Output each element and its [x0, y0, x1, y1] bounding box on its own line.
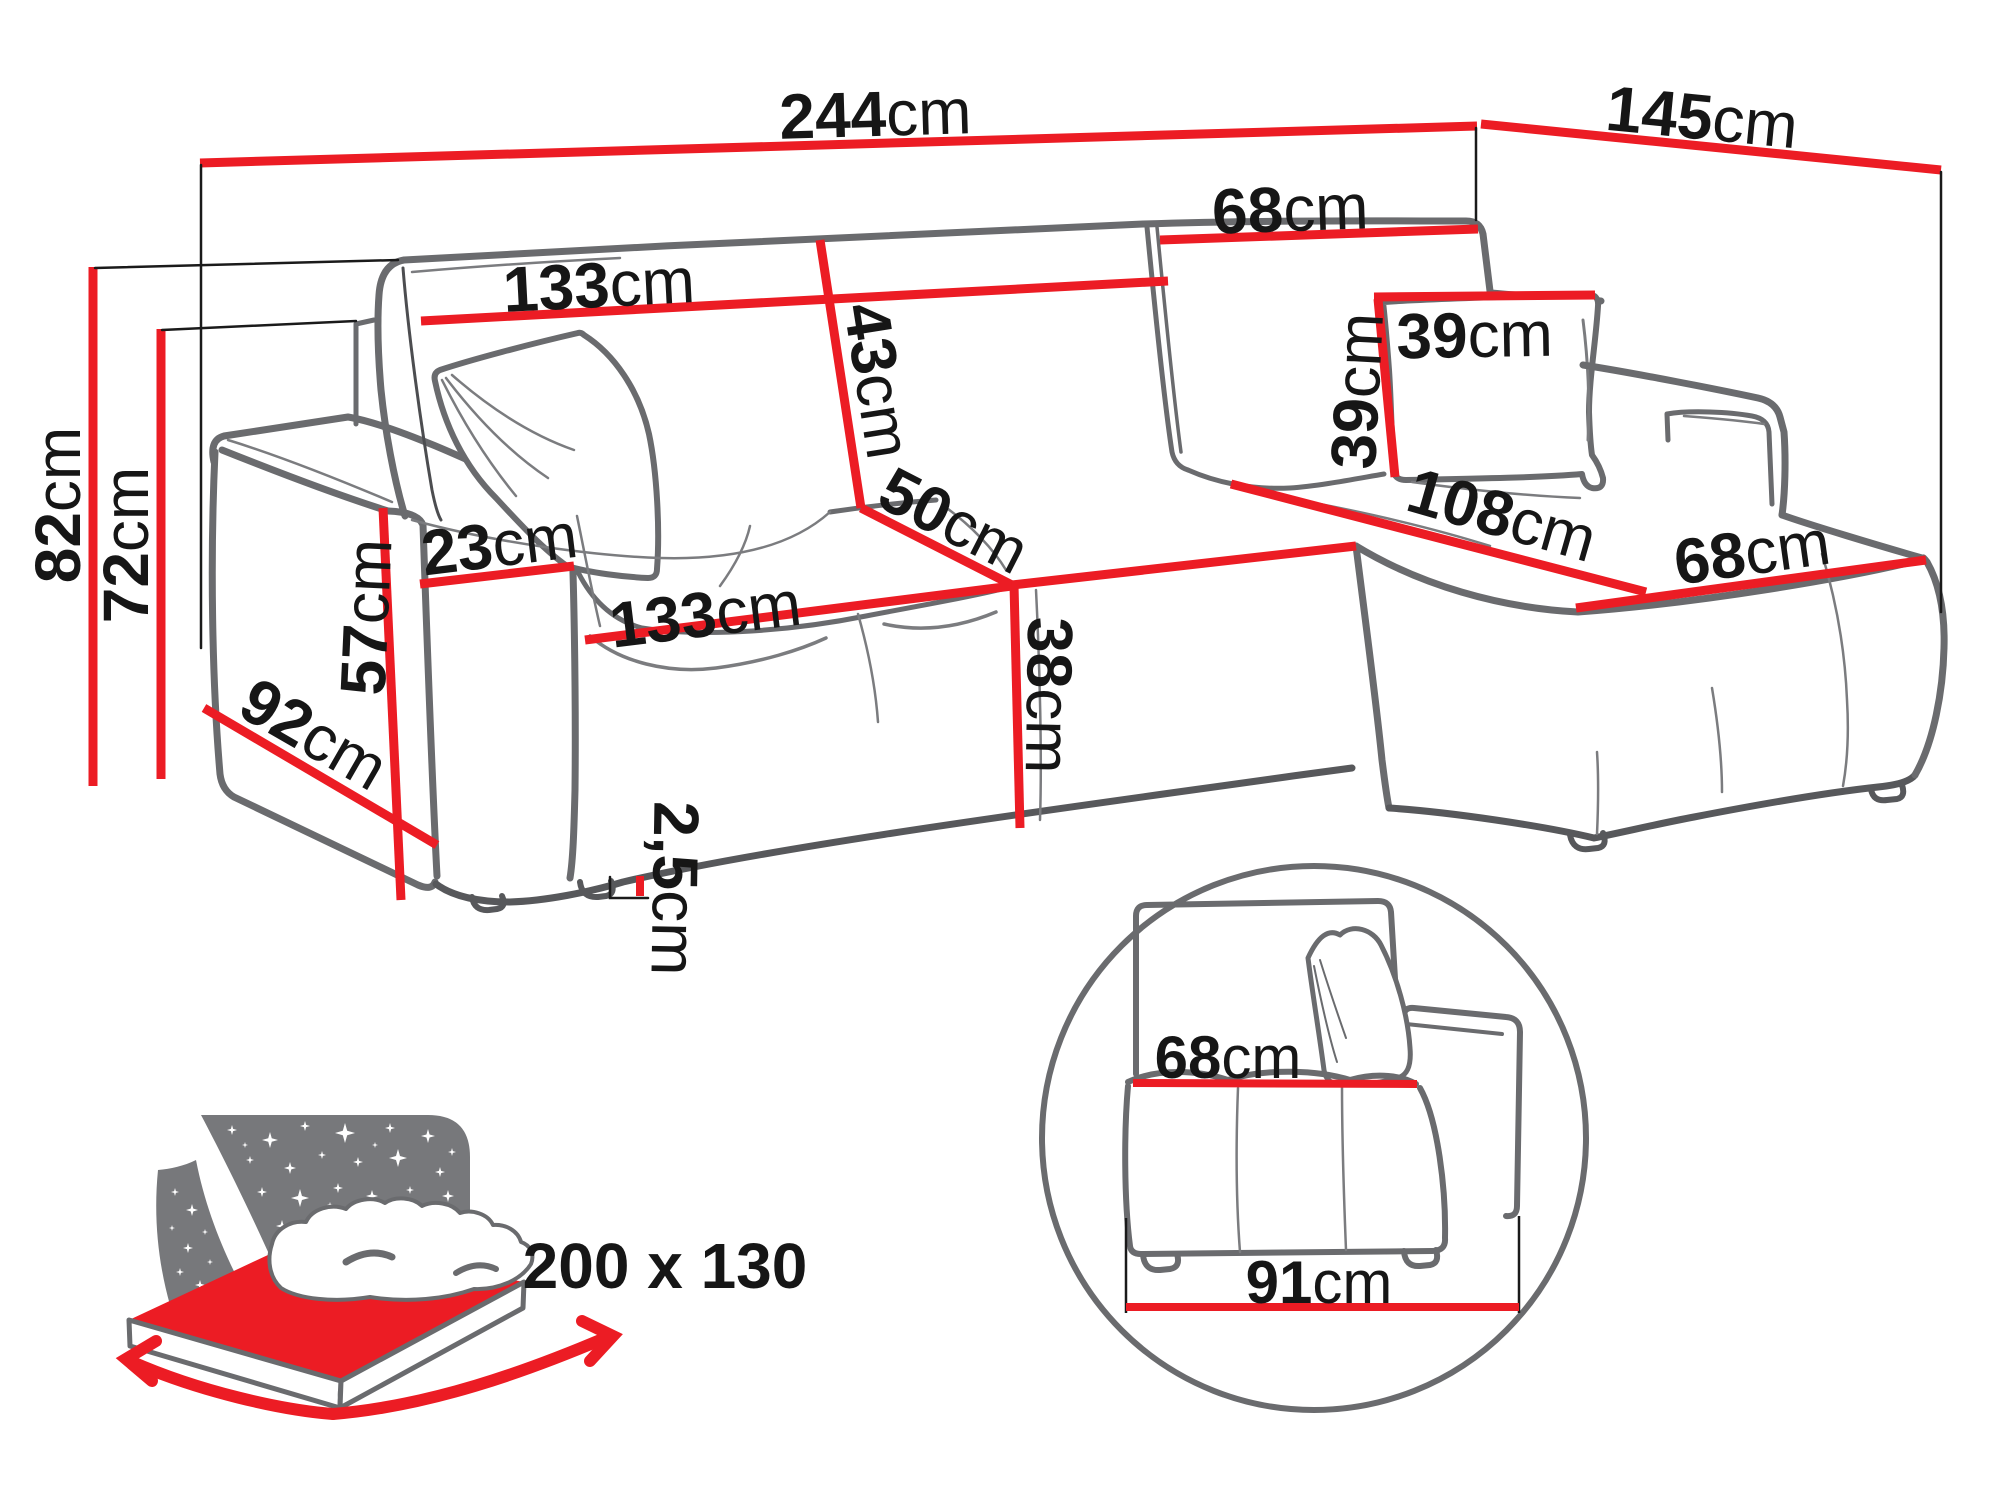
svg-text:133cm: 133cm	[606, 567, 805, 662]
svg-text:43cm: 43cm	[830, 298, 926, 464]
svg-text:2,5cm: 2,5cm	[637, 801, 712, 977]
svg-text:50cm: 50cm	[868, 453, 1040, 588]
svg-text:145cm: 145cm	[1603, 72, 1801, 162]
svg-text:91cm: 91cm	[1246, 1249, 1393, 1316]
svg-text:57cm: 57cm	[327, 537, 406, 697]
svg-text:72cm: 72cm	[90, 467, 162, 624]
svg-text:39cm: 39cm	[1317, 311, 1397, 471]
svg-text:200 x 130: 200 x 130	[523, 1230, 808, 1302]
svg-text:68cm: 68cm	[1211, 170, 1370, 247]
svg-text:133cm: 133cm	[501, 244, 697, 326]
svg-text:82cm: 82cm	[22, 427, 94, 584]
svg-text:23cm: 23cm	[417, 499, 581, 590]
svg-text:38cm: 38cm	[1012, 617, 1087, 775]
svg-text:244cm: 244cm	[778, 75, 972, 153]
svg-text:68cm: 68cm	[1155, 1024, 1302, 1091]
svg-text:39cm: 39cm	[1396, 298, 1554, 373]
